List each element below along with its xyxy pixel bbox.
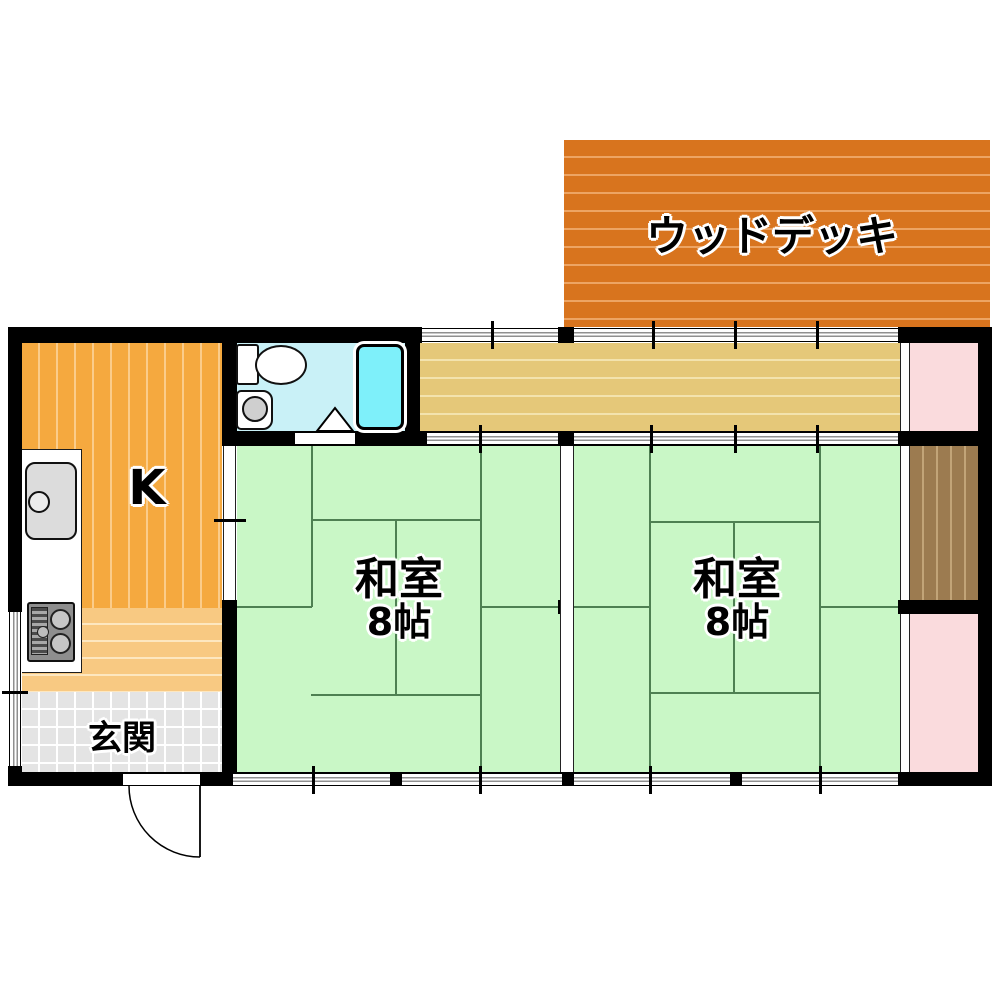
window-mullion-tick — [479, 425, 482, 453]
window-bottom-4 — [742, 773, 898, 786]
wall-bath-right — [405, 343, 420, 446]
tatami-mat-line — [819, 606, 900, 608]
gas-stove — [27, 602, 75, 662]
entrance-door-swing-arc — [129, 786, 200, 857]
faucet-icon — [28, 491, 50, 513]
window-bottom-2 — [402, 773, 562, 786]
window-mullion-tick — [649, 766, 652, 794]
wood-deck-label: ウッドデッキ — [646, 203, 898, 264]
wall-closet-divider-bottom — [898, 600, 978, 614]
wall-right — [978, 327, 992, 786]
window-mullion-tick — [816, 321, 819, 349]
corridor-floor — [420, 343, 900, 431]
window-mullion-tick — [652, 321, 655, 349]
room-size: 8帖 — [355, 603, 443, 643]
sliding-door-kitchen-tatami — [223, 446, 236, 600]
tatami-mat-line — [480, 446, 482, 772]
toilet-bowl — [255, 345, 307, 385]
window-mullion-tick — [819, 766, 822, 794]
room-name: 和室 — [355, 557, 443, 603]
tatami-mat-line — [649, 692, 820, 694]
window-mullion-tick — [816, 425, 819, 453]
wall-closet-divider-top — [898, 431, 978, 446]
closet-middle — [910, 446, 978, 600]
closet-middle-door — [900, 446, 910, 600]
window-mullion-tick — [650, 425, 653, 453]
wall-left — [8, 327, 22, 612]
window-mullion-tick — [491, 321, 494, 349]
window-mullion-tick — [2, 691, 28, 694]
closet-bottom — [910, 614, 978, 772]
window-bottom-1 — [233, 773, 390, 786]
window-mullion-tick — [214, 519, 246, 522]
wall-kitchen-tatami — [222, 600, 237, 772]
entrance-label: 玄関 — [88, 711, 156, 760]
tatami-mat-line — [574, 606, 650, 608]
room-name: 和室 — [693, 557, 781, 603]
fusuma-between-tatami — [560, 446, 574, 772]
tatami-mat-line — [649, 521, 820, 523]
tatami-mat-line — [237, 606, 312, 608]
kitchen-label: K — [128, 460, 165, 516]
stove-burner — [50, 609, 71, 630]
wall-top-post — [558, 327, 574, 343]
window-bottom-3 — [574, 773, 730, 786]
wall-kitchen-bath — [222, 343, 237, 445]
closet-bottom-door — [900, 614, 910, 772]
sliding-door-corridor-1 — [427, 432, 558, 445]
window-mullion-tick — [479, 766, 482, 794]
bathtub — [356, 344, 404, 430]
window-mullion-tick — [312, 766, 315, 794]
floorplan: ウッドデッキ K 玄関 和室 8帖 和室 8帖 — [0, 0, 1000, 1000]
stove-knob — [37, 626, 49, 638]
tatami-mat-line — [480, 606, 560, 608]
tatami-mat-line — [311, 446, 313, 607]
window-left-wall — [9, 612, 21, 766]
hand-wash-bowl — [242, 396, 268, 422]
tatami-room-right-label: 和室 8帖 — [693, 557, 781, 643]
stove-burner — [50, 633, 71, 654]
bathroom-door-gap — [295, 432, 355, 445]
sliding-door-corridor-2 — [574, 432, 898, 445]
window-mullion-tick — [734, 425, 737, 453]
tatami-mat-line — [649, 446, 651, 772]
wall-top-left — [8, 327, 422, 343]
closet-top — [910, 343, 978, 431]
entrance-door-gap — [123, 773, 200, 786]
tatami-room-left-label: 和室 8帖 — [355, 557, 443, 643]
window-top-2 — [574, 328, 898, 342]
window-mullion-tick — [734, 321, 737, 349]
tatami-mat-line — [819, 446, 821, 772]
window-top-1 — [422, 328, 558, 342]
closet-top-door — [900, 343, 910, 431]
room-size: 8帖 — [693, 603, 781, 643]
